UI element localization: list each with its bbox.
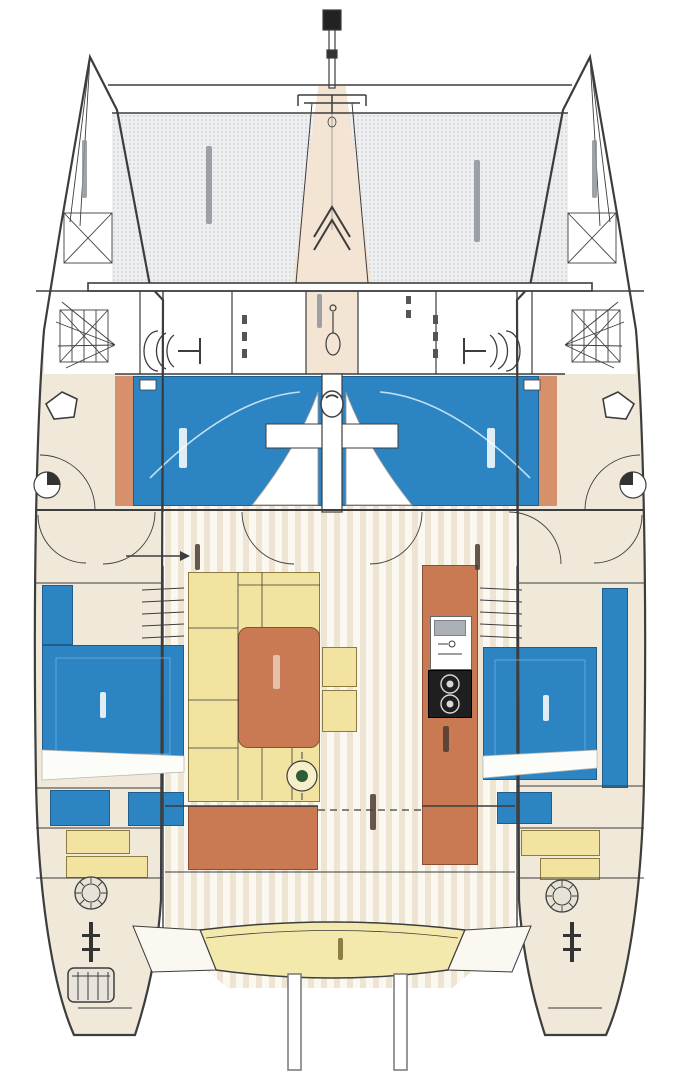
starboard-clutch-symbol xyxy=(464,331,520,371)
port-winch-icon xyxy=(75,877,107,909)
forward-strip-starboard xyxy=(539,376,557,506)
starboard-berth-cushion xyxy=(497,792,552,824)
illegible-label-trampoline-port xyxy=(206,146,212,224)
galley-stove xyxy=(428,670,472,718)
illegible-label-bench xyxy=(338,938,343,960)
forward-strip-port xyxy=(115,376,133,506)
starboard-dresser-a xyxy=(521,830,600,856)
illegible-label-lounge-starboard xyxy=(487,428,495,468)
illegible-label-lounge-port xyxy=(179,428,187,468)
port-dresser-b xyxy=(66,856,148,878)
port-clutch-symbol xyxy=(144,331,200,371)
catamaran-deck-plan xyxy=(0,0,681,1080)
salon-stool-b xyxy=(322,690,357,732)
forward-lounge-cushions xyxy=(133,376,539,506)
starboard-berth xyxy=(483,647,597,780)
illegible-label-port-berth xyxy=(100,692,106,718)
port-berth-cushion-b xyxy=(128,792,184,826)
starboard-wardrobe xyxy=(602,588,628,788)
mast-walkway-foredeck xyxy=(306,291,358,374)
door-handle-starboard xyxy=(475,544,480,570)
sliding-door-handle xyxy=(370,794,376,830)
illegible-label-port-bow xyxy=(82,140,87,198)
starboard-winch-icon xyxy=(546,880,578,912)
illegible-label-trampoline-starboard xyxy=(474,160,480,242)
galley-sink-basin xyxy=(434,620,466,636)
port-berth-cushion-a xyxy=(50,790,110,826)
aft-sideboard xyxy=(188,806,318,870)
transom-ladder xyxy=(68,968,114,1002)
illegible-label-starboard-bow xyxy=(592,140,597,198)
door-handle-port xyxy=(195,544,200,570)
port-dresser-a xyxy=(66,830,130,854)
starboard-deck-hatch-icon xyxy=(603,392,646,498)
illegible-label-table xyxy=(273,655,280,689)
illegible-label-starboard-berth xyxy=(543,695,549,721)
illegible-label-mast-step xyxy=(317,294,322,328)
port-deck-hatch-icon xyxy=(34,392,77,498)
port-wardrobe xyxy=(42,585,73,645)
port-anchor-locker xyxy=(56,302,115,368)
port-berth xyxy=(42,645,184,767)
davits xyxy=(288,974,407,1070)
port-bow-detail xyxy=(64,57,112,263)
illegible-label-galley xyxy=(443,726,449,752)
starboard-cleat-icon xyxy=(563,922,581,962)
masthead-icon xyxy=(323,10,341,30)
port-cleat-icon xyxy=(82,922,100,962)
salon-stool-a xyxy=(322,647,357,687)
starboard-anchor-locker xyxy=(565,302,624,368)
starboard-dresser-b xyxy=(540,858,600,880)
